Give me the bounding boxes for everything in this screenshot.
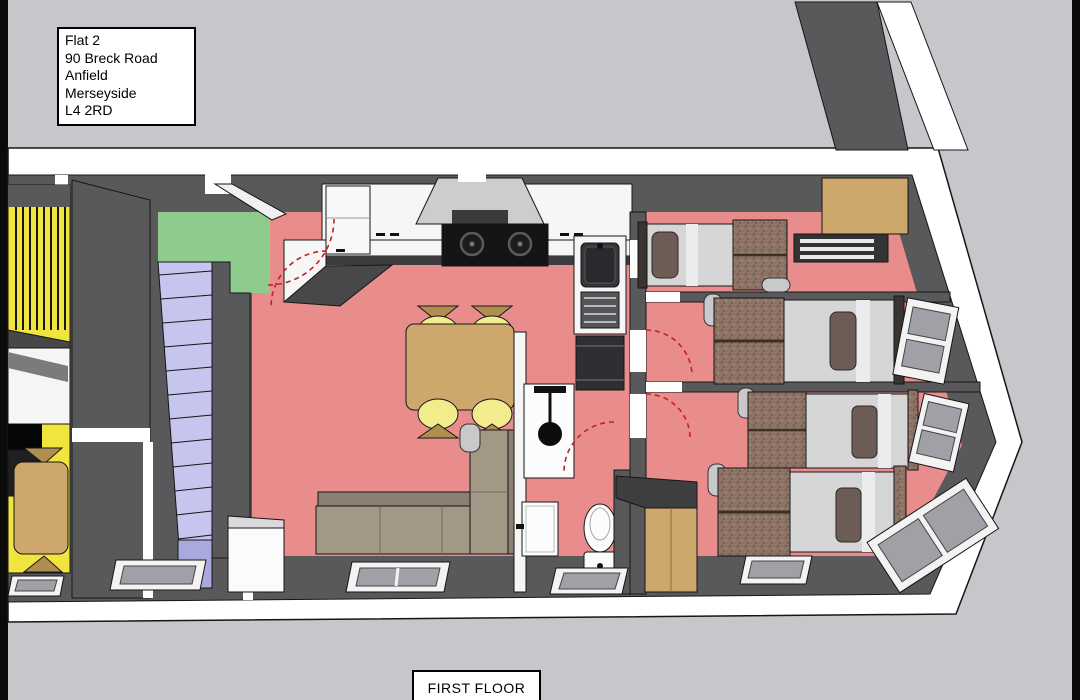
doorway bbox=[646, 382, 682, 392]
side-table bbox=[14, 462, 68, 554]
shower-valve bbox=[534, 386, 566, 393]
oven-unit bbox=[576, 336, 624, 390]
armrest bbox=[762, 278, 790, 292]
cabinet-handle bbox=[516, 524, 524, 529]
tv-unit bbox=[228, 516, 284, 592]
window-hall-bottom bbox=[550, 568, 628, 594]
bedroom-b bbox=[704, 294, 959, 384]
window-living-room bbox=[346, 562, 450, 592]
address-line: Anfield bbox=[65, 67, 189, 85]
yellow-room bbox=[8, 185, 70, 573]
wall-gap bbox=[72, 428, 150, 442]
pillow bbox=[852, 406, 877, 458]
bathroom-cabinet bbox=[522, 502, 558, 556]
dining-table bbox=[406, 324, 514, 410]
bedroom-wall-2 bbox=[646, 382, 980, 392]
window-yellow-room bbox=[8, 576, 64, 596]
bed-2 bbox=[704, 294, 904, 384]
appliance-dark bbox=[8, 424, 42, 450]
doorway bbox=[646, 292, 680, 302]
left-edge-strip bbox=[0, 0, 8, 700]
sink-unit bbox=[574, 236, 626, 334]
address-line: 90 Breck Road bbox=[65, 50, 189, 68]
toilet bbox=[584, 504, 616, 552]
pillow bbox=[652, 232, 678, 278]
window-stair-bottom bbox=[110, 560, 206, 590]
doorway bbox=[630, 330, 646, 372]
sofa-arm bbox=[460, 424, 480, 452]
bed-3 bbox=[738, 388, 918, 470]
left-wall-column bbox=[72, 180, 153, 598]
floor-plan-page: Flat 2 90 Breck Road Anfield Merseyside … bbox=[0, 0, 1080, 700]
right-edge-strip bbox=[1072, 0, 1080, 700]
pillow bbox=[830, 312, 856, 370]
stair-wall bbox=[212, 262, 250, 558]
bed-1 bbox=[638, 220, 790, 292]
headboard bbox=[638, 222, 647, 288]
window-bedroom-c-bottom bbox=[740, 556, 812, 584]
pillow bbox=[836, 488, 861, 542]
tap bbox=[597, 243, 603, 249]
fridge bbox=[326, 186, 370, 254]
wardrobe-1 bbox=[822, 178, 908, 234]
address-line: Flat 2 bbox=[65, 32, 189, 50]
chimney-gap bbox=[458, 170, 486, 182]
hood-vent bbox=[452, 210, 508, 224]
floor-label: FIRST FLOOR bbox=[412, 670, 541, 700]
address-line: Merseyside bbox=[65, 85, 189, 103]
address-line: L4 2RD bbox=[65, 102, 189, 120]
doorway bbox=[630, 394, 646, 438]
address-box: Flat 2 90 Breck Road Anfield Merseyside … bbox=[57, 27, 196, 126]
shower-head bbox=[538, 422, 562, 446]
